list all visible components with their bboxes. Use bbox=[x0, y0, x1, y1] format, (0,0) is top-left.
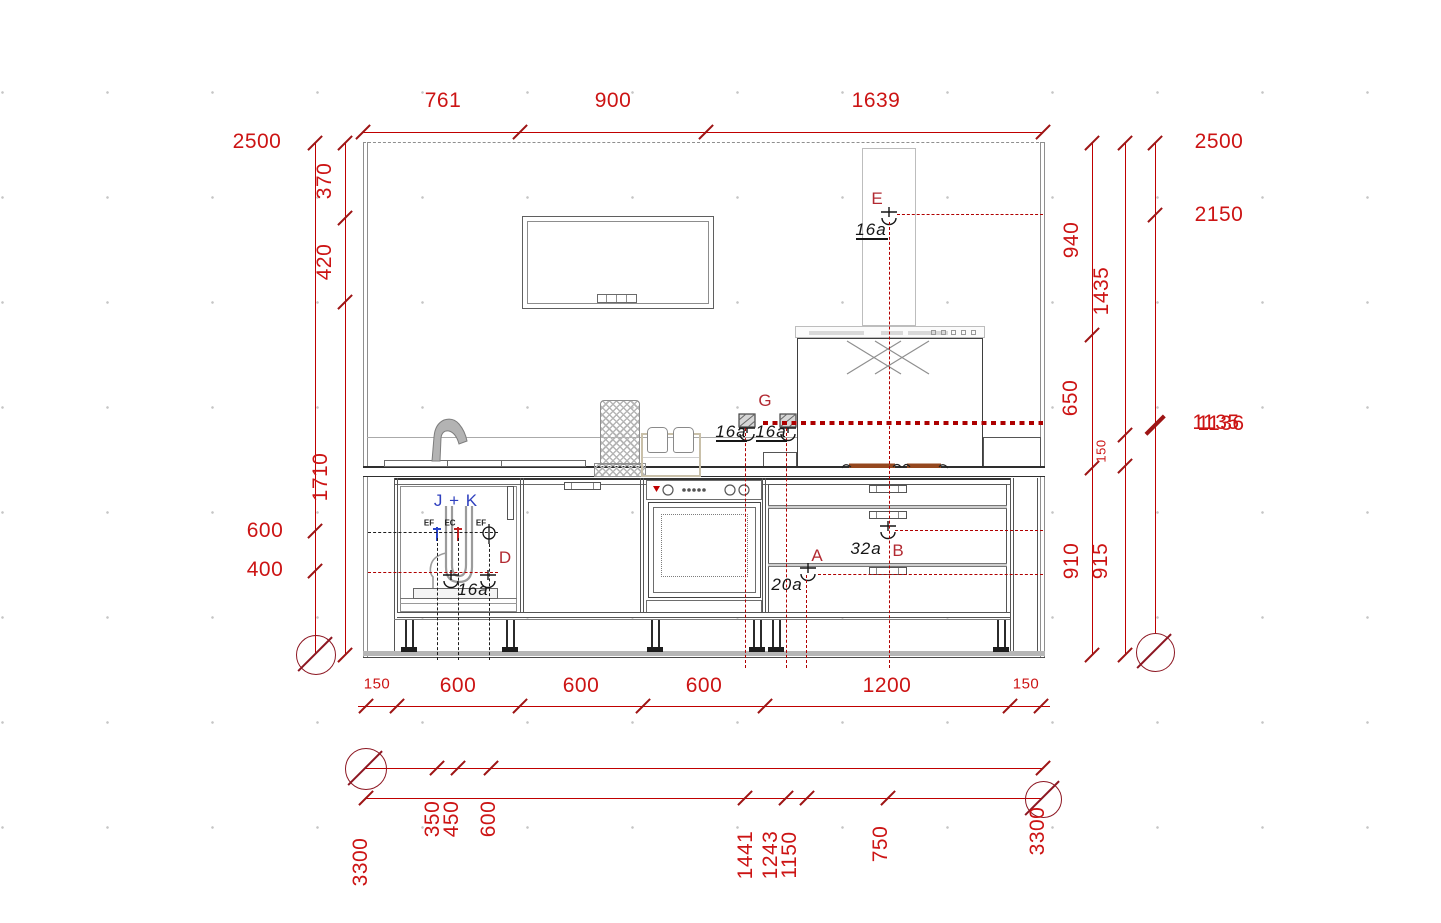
dim-line-bottom bbox=[358, 706, 1050, 707]
faucet bbox=[432, 419, 467, 461]
dim-label: 450 bbox=[440, 801, 464, 838]
dim-label: 370 bbox=[313, 163, 337, 200]
dim-label: 650 bbox=[1059, 380, 1083, 417]
dim-label: 600 bbox=[563, 674, 600, 698]
cad-kitchen-elevation: 761 900 1639 2500 370 420 1710 600 400 2… bbox=[0, 0, 1441, 923]
dim-label: 940 bbox=[1060, 222, 1084, 259]
socket-rating-d: 16a bbox=[457, 580, 488, 600]
label-underline bbox=[756, 440, 787, 442]
oven-indicator-triangle bbox=[653, 486, 660, 492]
dim-label: 600 bbox=[477, 801, 501, 838]
dim-line-right-2 bbox=[1125, 143, 1126, 655]
label-underline bbox=[856, 238, 888, 240]
ref-line-vertical-g1 bbox=[745, 428, 746, 668]
ref-line-a-level bbox=[818, 574, 1043, 575]
socket-rating-a: 20a bbox=[771, 575, 802, 595]
dim-label: 2500 bbox=[1195, 130, 1244, 154]
dim-line-right-3 bbox=[1155, 143, 1156, 633]
hood-glass-pattern bbox=[847, 341, 929, 374]
socket-label-b: B bbox=[892, 541, 903, 561]
appliance-group-label: J + K bbox=[434, 491, 478, 511]
dim-label: 1710 bbox=[309, 453, 333, 502]
dim-label: 3300 bbox=[349, 838, 373, 887]
dim-label: 3300 bbox=[1026, 807, 1050, 856]
ref-line-e-level bbox=[897, 214, 1043, 215]
dim-label: 910 bbox=[1060, 543, 1084, 580]
ref-line-vertical-g2 bbox=[786, 428, 787, 668]
ref-line-vertical-sink1 bbox=[437, 538, 438, 660]
dim-label: 600 bbox=[440, 674, 477, 698]
dim-label: 150 bbox=[364, 676, 391, 693]
ref-line-b-level bbox=[895, 530, 1043, 531]
dim-label: 600 bbox=[686, 674, 723, 698]
datum-circle-baseline-left bbox=[345, 748, 387, 790]
ref-line-600-level bbox=[368, 532, 498, 533]
baseline-upper bbox=[365, 768, 1043, 769]
tiny-label: EF bbox=[476, 519, 486, 528]
dim-label: 1639 bbox=[852, 89, 901, 113]
tiny-label: EF bbox=[424, 519, 434, 528]
ref-line-vertical-sink3 bbox=[489, 544, 490, 660]
dim-label: 2150 bbox=[1195, 203, 1244, 227]
label-underline bbox=[716, 440, 747, 442]
socket-rating-e: 16a bbox=[855, 220, 886, 240]
dim-label: 150 bbox=[1013, 676, 1040, 693]
dim-label: 900 bbox=[595, 89, 632, 113]
ref-line-vertical-e bbox=[889, 222, 890, 668]
dim-label: 915 bbox=[1089, 543, 1113, 580]
socket-label-d: D bbox=[499, 548, 511, 568]
hob bbox=[842, 464, 948, 469]
dim-label: 420 bbox=[313, 244, 337, 281]
baseline-lower bbox=[366, 798, 1042, 799]
dim-label: 1441 bbox=[734, 831, 758, 880]
socket-label-a: A bbox=[811, 546, 822, 566]
datum-circle-left bbox=[296, 635, 336, 675]
ref-line-1135-level bbox=[763, 421, 1043, 425]
tiny-label: EC bbox=[444, 519, 455, 528]
dim-label: 1435 bbox=[1090, 267, 1114, 316]
ref-line-vertical-a bbox=[806, 575, 807, 668]
socket-label-e: E bbox=[871, 189, 882, 209]
dim-label: 2500 bbox=[233, 130, 282, 154]
dim-label: 1150 bbox=[778, 831, 802, 878]
socket-label-g: G bbox=[758, 391, 771, 411]
dim-label: 761 bbox=[425, 89, 462, 113]
dim-label: 750 bbox=[869, 826, 893, 863]
socket-glyph-b bbox=[880, 521, 896, 539]
dim-label: 600 bbox=[247, 519, 284, 543]
dim-label: 1200 bbox=[863, 674, 912, 698]
dim-label: 150 bbox=[1094, 439, 1109, 462]
dim-label: 400 bbox=[247, 558, 284, 582]
ref-line-400-level bbox=[368, 572, 498, 573]
socket-rating-g2: 16a bbox=[755, 422, 786, 442]
socket-rating-g1: 16a bbox=[715, 422, 746, 442]
socket-rating-b: 32a bbox=[850, 539, 881, 559]
dim-line-left-outer bbox=[315, 143, 316, 654]
dim-label-overlapped: 1136 bbox=[1197, 412, 1244, 436]
dim-line-left-inner bbox=[345, 143, 346, 655]
oven-knobs bbox=[663, 485, 749, 495]
datum-circle-right bbox=[1136, 633, 1175, 672]
